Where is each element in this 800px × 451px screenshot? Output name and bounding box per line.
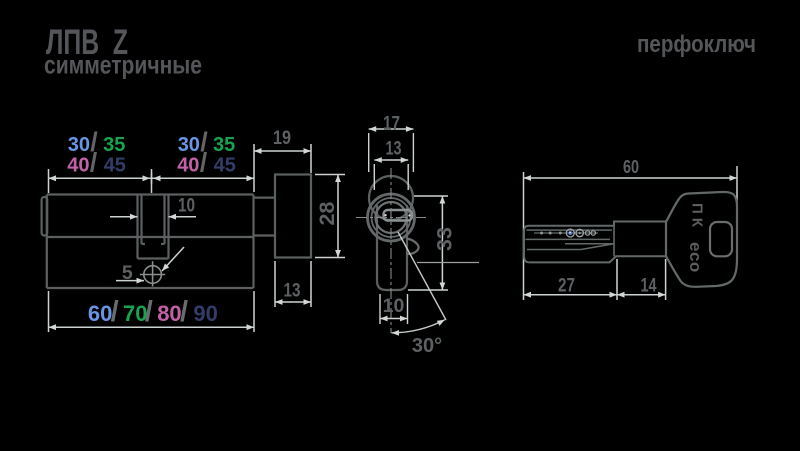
svg-text:70: 70 [123, 301, 147, 326]
svg-text:14: 14 [641, 275, 657, 297]
svg-text:10: 10 [383, 295, 405, 317]
svg-text:33: 33 [433, 227, 457, 251]
svg-text:/: / [145, 296, 153, 328]
svg-text:17: 17 [383, 112, 400, 134]
svg-text:40: 40 [67, 154, 89, 176]
svg-text:27: 27 [558, 275, 575, 297]
svg-text:28: 28 [315, 202, 339, 226]
svg-text:10: 10 [178, 195, 195, 217]
svg-text:35: 35 [103, 134, 125, 156]
svg-text:/: / [111, 296, 119, 328]
svg-text:60: 60 [623, 157, 639, 177]
svg-text:40: 40 [177, 154, 199, 176]
svg-text:90: 90 [193, 301, 217, 326]
svg-text:30: 30 [68, 134, 90, 156]
svg-text:30: 30 [178, 134, 200, 156]
svg-text:ПК: ПК [689, 203, 706, 231]
svg-text:/: / [200, 147, 208, 177]
svg-text:/: / [180, 296, 188, 328]
svg-text:45: 45 [214, 154, 236, 176]
svg-text:60: 60 [88, 301, 112, 326]
svg-text:13: 13 [284, 280, 301, 302]
svg-text:13: 13 [386, 138, 402, 160]
svg-text:19: 19 [273, 127, 291, 149]
svg-text:30°: 30° [412, 335, 442, 357]
svg-text:5: 5 [122, 262, 133, 284]
svg-text:/: / [90, 147, 98, 177]
svg-text:80: 80 [157, 301, 181, 326]
svg-text:перфоключ: перфоключ [637, 31, 756, 58]
svg-text:35: 35 [213, 134, 235, 156]
svg-text:45: 45 [104, 154, 126, 176]
svg-text:симметричные: симметричные [44, 50, 202, 80]
svg-text:eco: eco [686, 242, 705, 273]
